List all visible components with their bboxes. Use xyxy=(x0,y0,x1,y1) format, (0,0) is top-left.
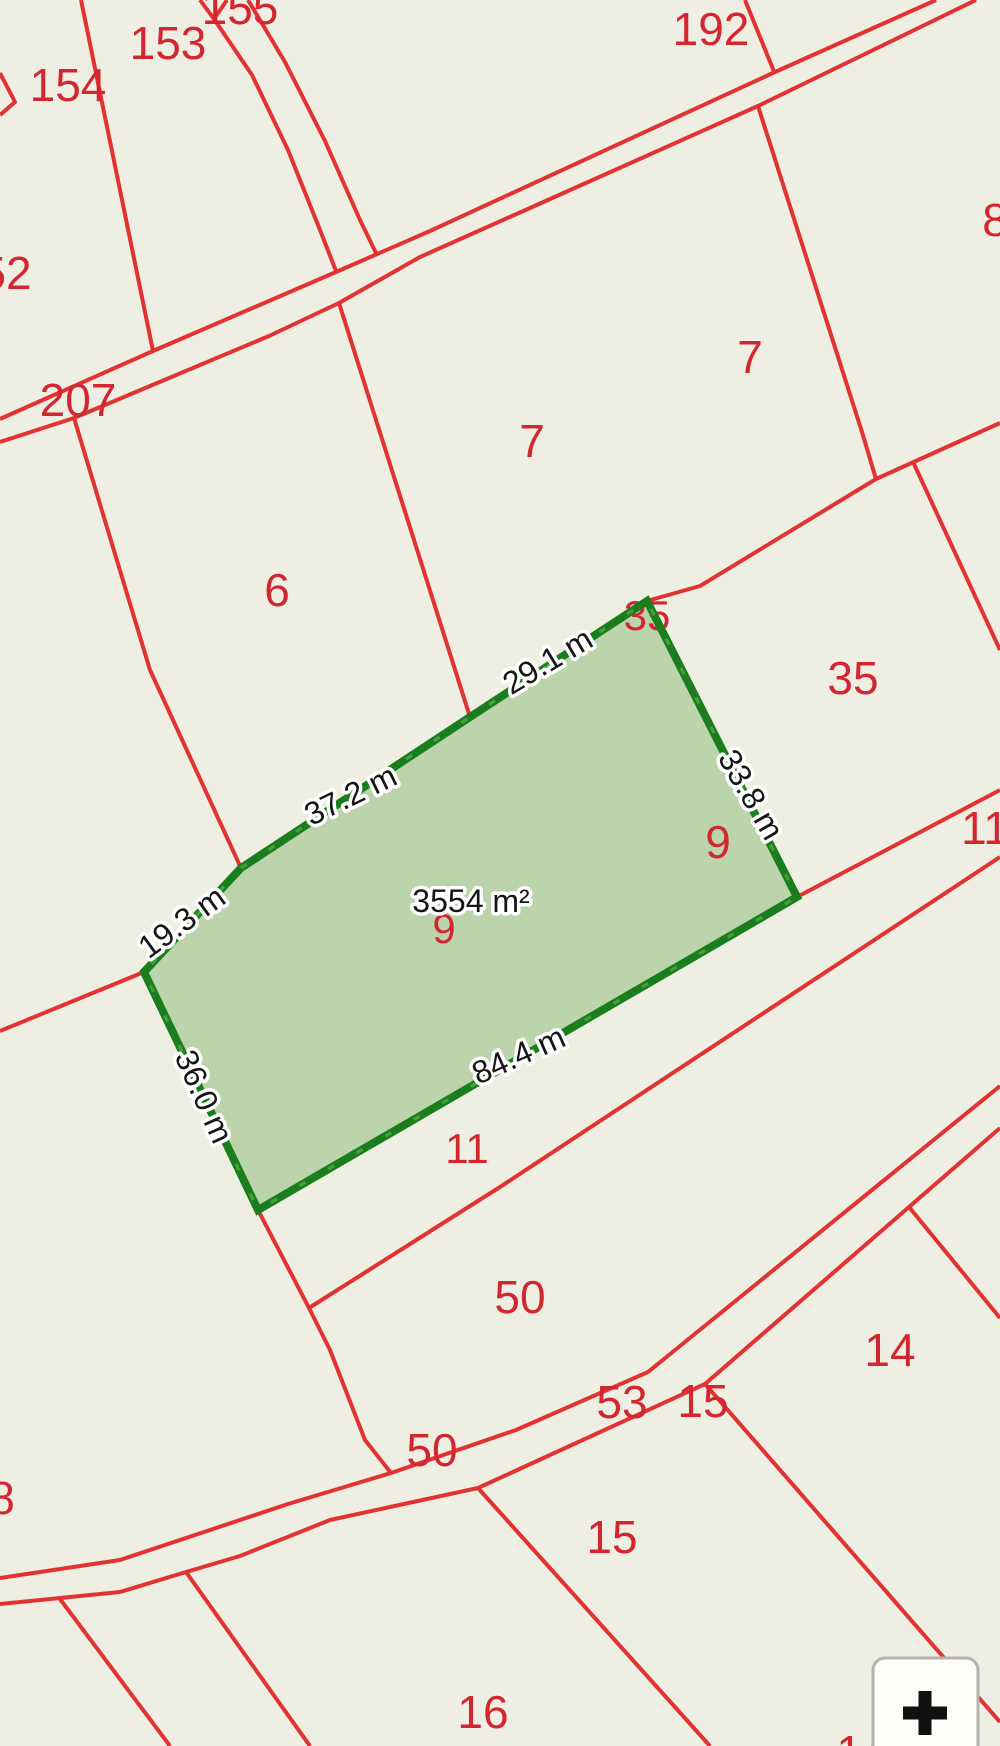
svg-text:155: 155 xyxy=(202,0,279,34)
svg-text:8: 8 xyxy=(982,194,1000,246)
svg-text:6: 6 xyxy=(264,564,290,616)
svg-text:3554 m²: 3554 m² xyxy=(412,883,530,919)
svg-text:8: 8 xyxy=(0,1472,15,1524)
svg-text:9: 9 xyxy=(705,816,731,868)
svg-text:7: 7 xyxy=(737,331,763,383)
svg-text:53: 53 xyxy=(596,1376,647,1428)
svg-text:153: 153 xyxy=(130,17,207,69)
svg-text:50: 50 xyxy=(406,1424,457,1476)
svg-text:15: 15 xyxy=(586,1511,637,1563)
svg-text:154: 154 xyxy=(30,59,107,111)
svg-text:207: 207 xyxy=(40,374,117,426)
svg-text:50: 50 xyxy=(494,1271,545,1323)
svg-text:14: 14 xyxy=(864,1324,915,1376)
svg-text:16: 16 xyxy=(457,1686,508,1738)
svg-text:11: 11 xyxy=(961,802,1000,854)
svg-text:192: 192 xyxy=(673,3,750,55)
svg-text:52: 52 xyxy=(0,247,32,299)
svg-text:35: 35 xyxy=(827,652,878,704)
svg-text:15: 15 xyxy=(677,1375,728,1427)
svg-text:11: 11 xyxy=(445,1125,489,1172)
svg-text:7: 7 xyxy=(519,415,545,467)
